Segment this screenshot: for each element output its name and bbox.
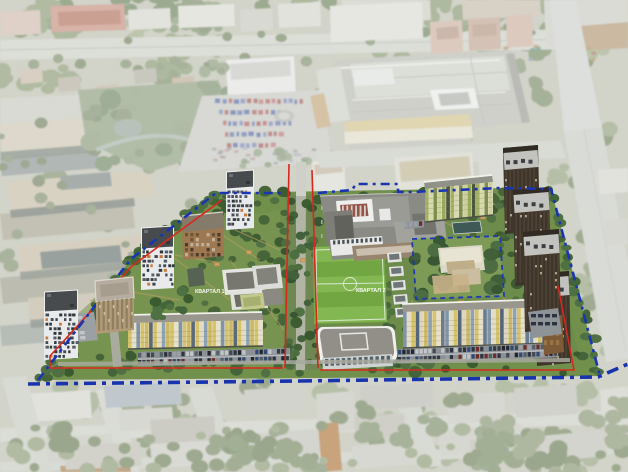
svg-text:КВАРТАЛ 1: КВАРТАЛ 1 bbox=[195, 289, 225, 295]
svg-text:КВАРТАЛ 2: КВАРТАЛ 2 bbox=[356, 288, 386, 294]
